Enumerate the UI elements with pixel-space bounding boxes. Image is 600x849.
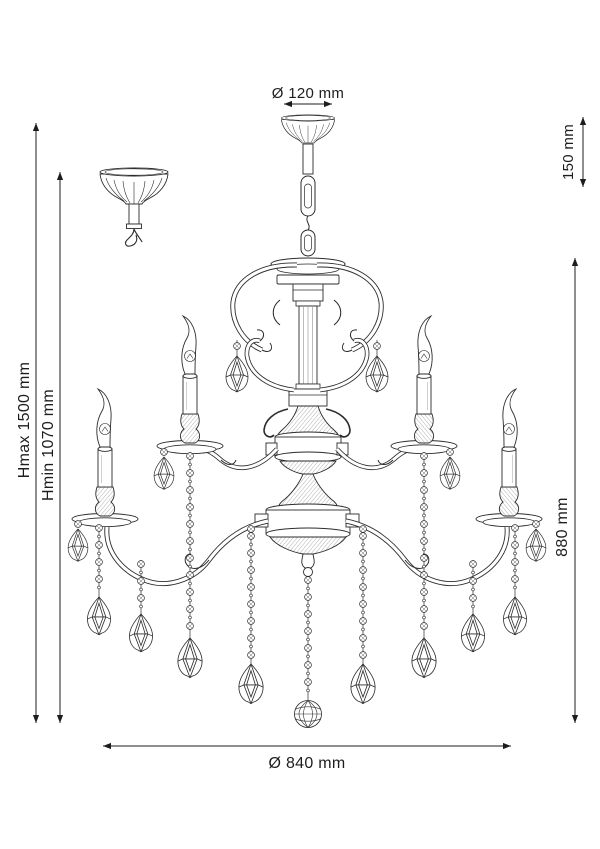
left-arms-candles (68, 265, 297, 704)
right-arms-candles (317, 265, 546, 704)
chandelier-technical-drawing: Ø 120 mm 150 mm Hmax 1500 mm Hmin 1070 m… (0, 0, 600, 849)
dim-suspension-height-label: 150 mm (560, 124, 577, 180)
chain (301, 144, 315, 256)
central-stack (266, 406, 350, 577)
canopy-detail (100, 168, 168, 246)
dim-hmax-label: Hmax 1500 mm (16, 362, 33, 479)
dimension-suspension-height: 150 mm (560, 117, 583, 187)
dim-top-diameter-label: Ø 120 mm (272, 85, 344, 102)
drawing-sheet: Ø 120 mm 150 mm Hmax 1500 mm Hmin 1070 m… (0, 0, 600, 849)
chandelier (68, 115, 546, 728)
dimension-fixture-diameter: Ø 840 mm (103, 746, 511, 772)
dim-fixture-diameter-label: Ø 840 mm (268, 755, 345, 772)
dimension-top-diameter: Ø 120 mm (272, 85, 344, 104)
column (271, 258, 345, 406)
dimension-hmax: Hmax 1500 mm (16, 123, 36, 723)
main-canopy (281, 115, 334, 143)
bottom-ball (295, 701, 322, 728)
dimension-hmin: Hmin 1070 mm (40, 172, 60, 723)
dimension-fixture-height: 880 mm (554, 258, 575, 723)
dim-fixture-height-label: 880 mm (554, 497, 571, 557)
center-string (295, 576, 322, 728)
dim-hmin-label: Hmin 1070 mm (40, 389, 57, 501)
